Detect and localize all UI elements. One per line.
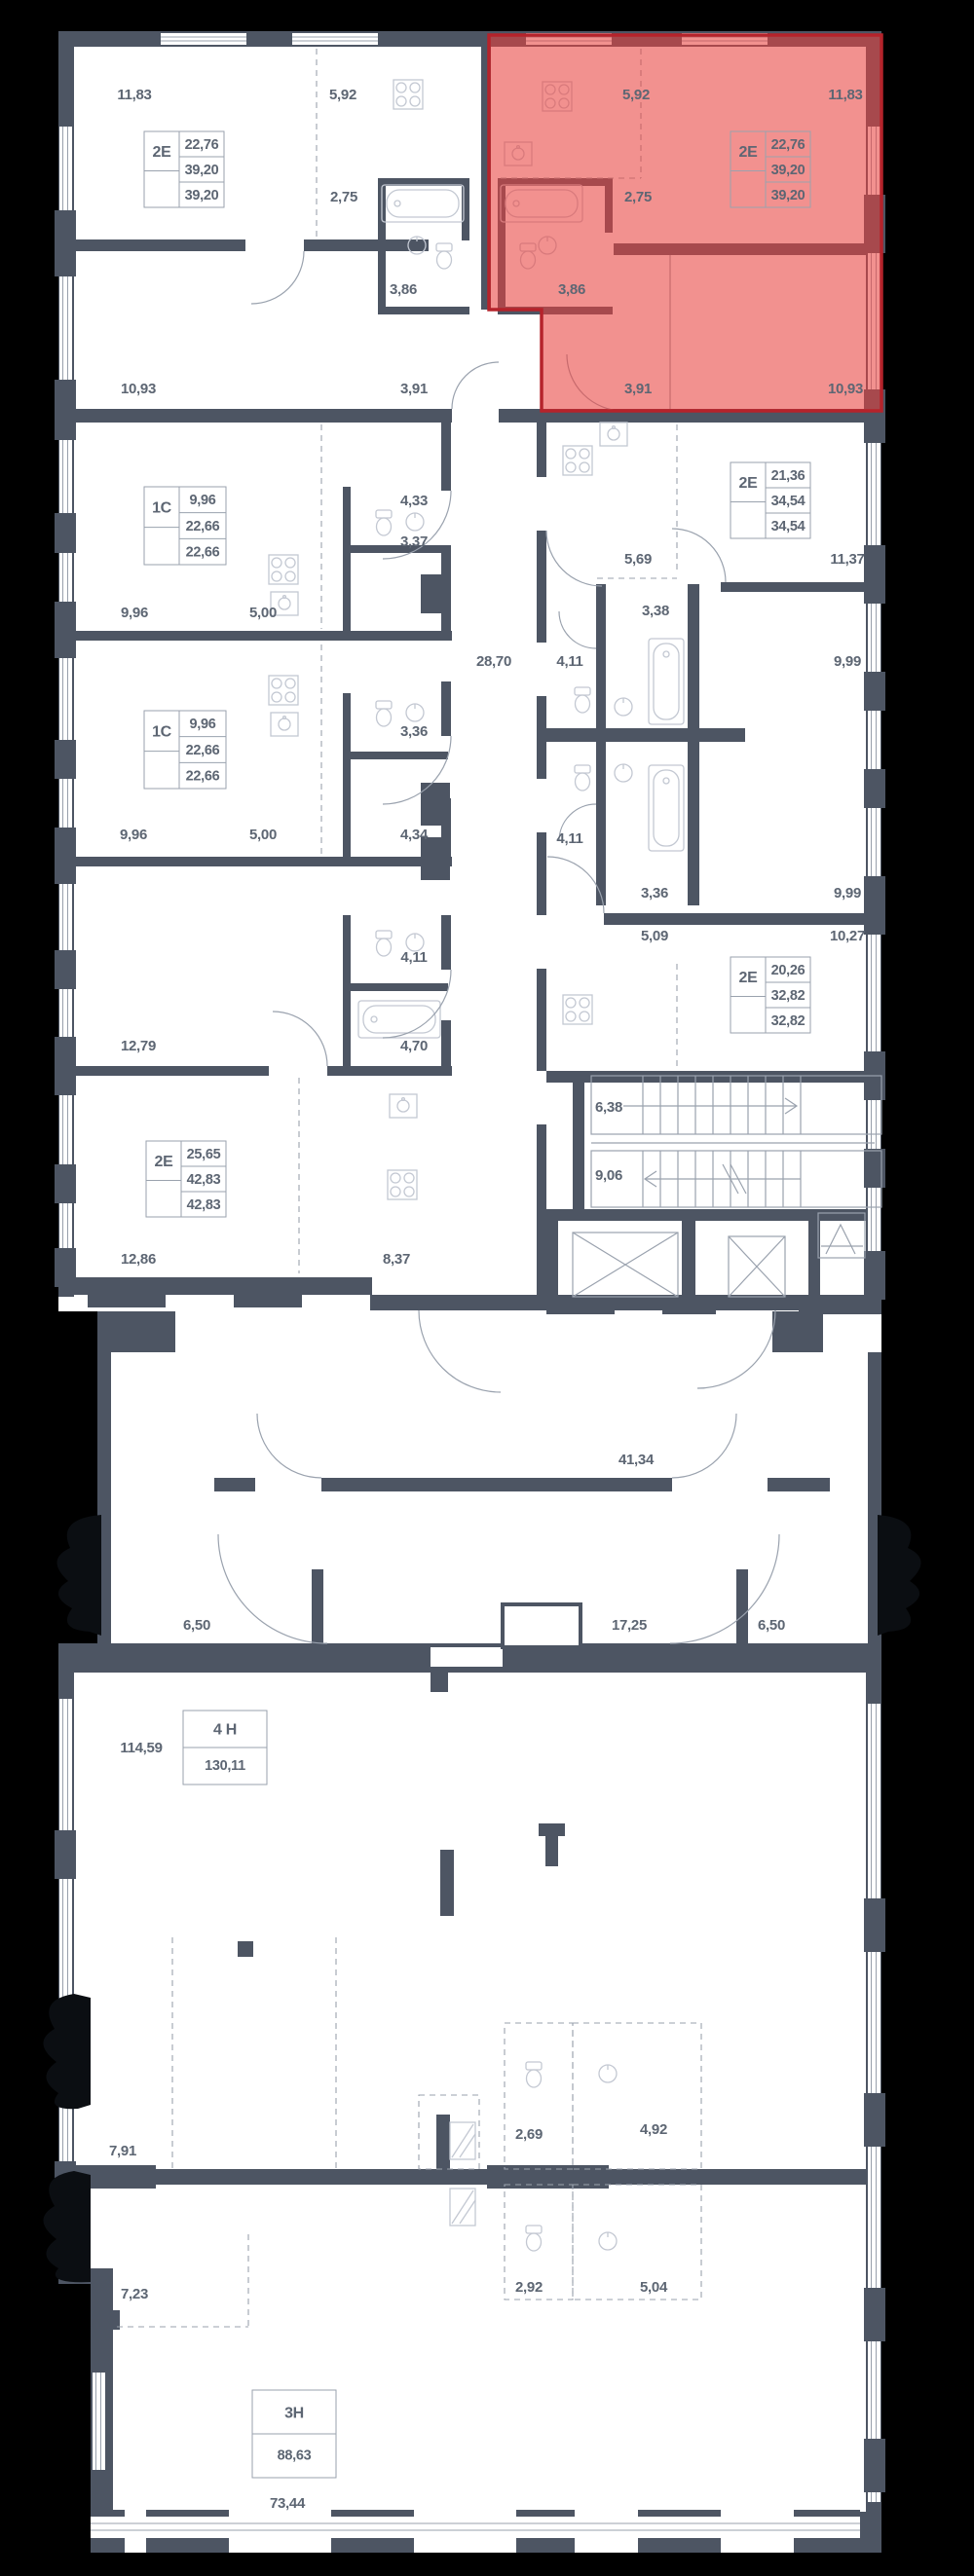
dimension-label: 4,70 (400, 1038, 428, 1054)
dimension-label: 9,99 (834, 653, 861, 670)
dimension-label: 28,70 (476, 653, 511, 670)
dimension-label: 9,96 (121, 605, 148, 621)
unit-type: 1С (152, 724, 172, 741)
dimension-label: 3,36 (400, 723, 428, 740)
dimension-label: 2,75 (330, 189, 357, 205)
dimension-label: 3,36 (641, 885, 668, 902)
dimension-label: 17,25 (612, 1617, 647, 1634)
unit-area-value: 22,66 (186, 743, 220, 758)
unit-area-value: 34,54 (771, 519, 805, 534)
unit-area-value: 42,83 (187, 1197, 221, 1213)
dimension-label: 7,23 (121, 2286, 148, 2302)
dimension-label: 12,79 (121, 1038, 156, 1054)
unit-area-value: 22,66 (186, 544, 220, 560)
dimension-label: 6,50 (758, 1617, 785, 1634)
unit-type: 2Е (739, 970, 759, 986)
dimension-label: 4,11 (556, 830, 582, 847)
unit-area-value: 25,65 (187, 1147, 221, 1162)
unit-area-value: 39,20 (185, 188, 219, 203)
dimension-label: 5,09 (641, 928, 668, 944)
unit-type: 3Н (284, 2406, 304, 2422)
dimension-label: 10,27 (830, 928, 865, 944)
dimension-label: 10,93 (828, 381, 863, 397)
dimension-label: 4,11 (400, 949, 427, 966)
dimension-label: 6,50 (183, 1617, 210, 1634)
unit-area-value: 22,66 (186, 768, 220, 784)
unit-area-value: 9,96 (189, 493, 215, 508)
unit-area-value: 32,82 (771, 1013, 805, 1029)
dimension-label: 2,92 (515, 2279, 543, 2296)
unit-area-value: 21,36 (771, 468, 805, 484)
unit-type: 2Е (155, 1154, 174, 1170)
unit-area-value: 22,76 (771, 137, 805, 153)
dimension-label: 2,69 (515, 2126, 543, 2143)
dimension-label: 4,33 (400, 493, 428, 509)
dimension-label: 5,04 (640, 2279, 668, 2296)
dimension-label: 5,00 (249, 605, 277, 621)
dimension-label: 3,91 (400, 381, 428, 397)
dimension-label: 9,96 (120, 827, 147, 843)
dimension-label: 3,38 (642, 603, 669, 619)
highlighted-unit[interactable] (489, 35, 881, 411)
dimension-label: 5,92 (329, 87, 356, 103)
dimension-label: 6,38 (595, 1099, 622, 1116)
dimension-label: 10,93 (121, 381, 156, 397)
unit-area-value: 34,54 (771, 494, 805, 509)
unit-area-value: 39,20 (771, 188, 805, 203)
dimension-label: 114,59 (120, 1740, 162, 1756)
unit-area-value: 39,20 (771, 163, 805, 178)
dimension-label: 4,34 (400, 827, 429, 843)
dimension-label: 12,86 (121, 1251, 156, 1268)
dimension-label: 41,34 (618, 1452, 655, 1468)
dimension-label: 8,37 (383, 1251, 410, 1268)
dimension-label: 4,11 (556, 653, 582, 670)
unit-area-value: 22,76 (185, 137, 219, 153)
unit-type: 2Е (739, 144, 759, 161)
unit-type: 1С (152, 500, 172, 517)
unit-type: 4 Н (213, 1722, 237, 1739)
dimension-label: 9,06 (595, 1167, 622, 1184)
unit-area-value: 42,83 (187, 1172, 221, 1188)
dimension-label: 7,91 (109, 2143, 136, 2159)
unit-type: 2Е (739, 475, 759, 492)
dimension-label: 5,92 (622, 87, 650, 103)
dimension-label: 11,83 (117, 87, 151, 103)
dimension-label: 73,44 (270, 2495, 306, 2512)
dimension-label: 11,37 (830, 551, 864, 568)
unit-type: 2Е (153, 144, 172, 161)
dimension-label: 5,69 (624, 551, 652, 568)
dimension-label: 3,86 (558, 281, 585, 298)
dimension-label: 2,75 (624, 189, 652, 205)
unit-area-value: 20,26 (771, 963, 805, 978)
unit-area-value: 22,66 (186, 519, 220, 534)
unit-area-value: 39,20 (185, 163, 219, 178)
dimension-label: 9,99 (834, 885, 861, 902)
dimension-label: 5,00 (249, 827, 277, 843)
unit-area-value: 32,82 (771, 988, 805, 1004)
unit-area-value: 88,63 (278, 2447, 312, 2463)
dimension-label: 3,37 (400, 534, 428, 550)
unit-area-value: 130,11 (205, 1758, 245, 1774)
floor-plan-svg: 11,835,922,753,8610,933,915,9211,832,753… (0, 0, 974, 2576)
dimension-label: 4,92 (640, 2121, 667, 2138)
dimension-label: 11,83 (828, 87, 862, 103)
unit-area-value: 9,96 (189, 717, 215, 732)
floorplan-screenshot: 11,835,922,753,8610,933,915,9211,832,753… (0, 0, 974, 2576)
dimension-label: 3,86 (390, 281, 417, 298)
dimension-label: 3,91 (624, 381, 652, 397)
